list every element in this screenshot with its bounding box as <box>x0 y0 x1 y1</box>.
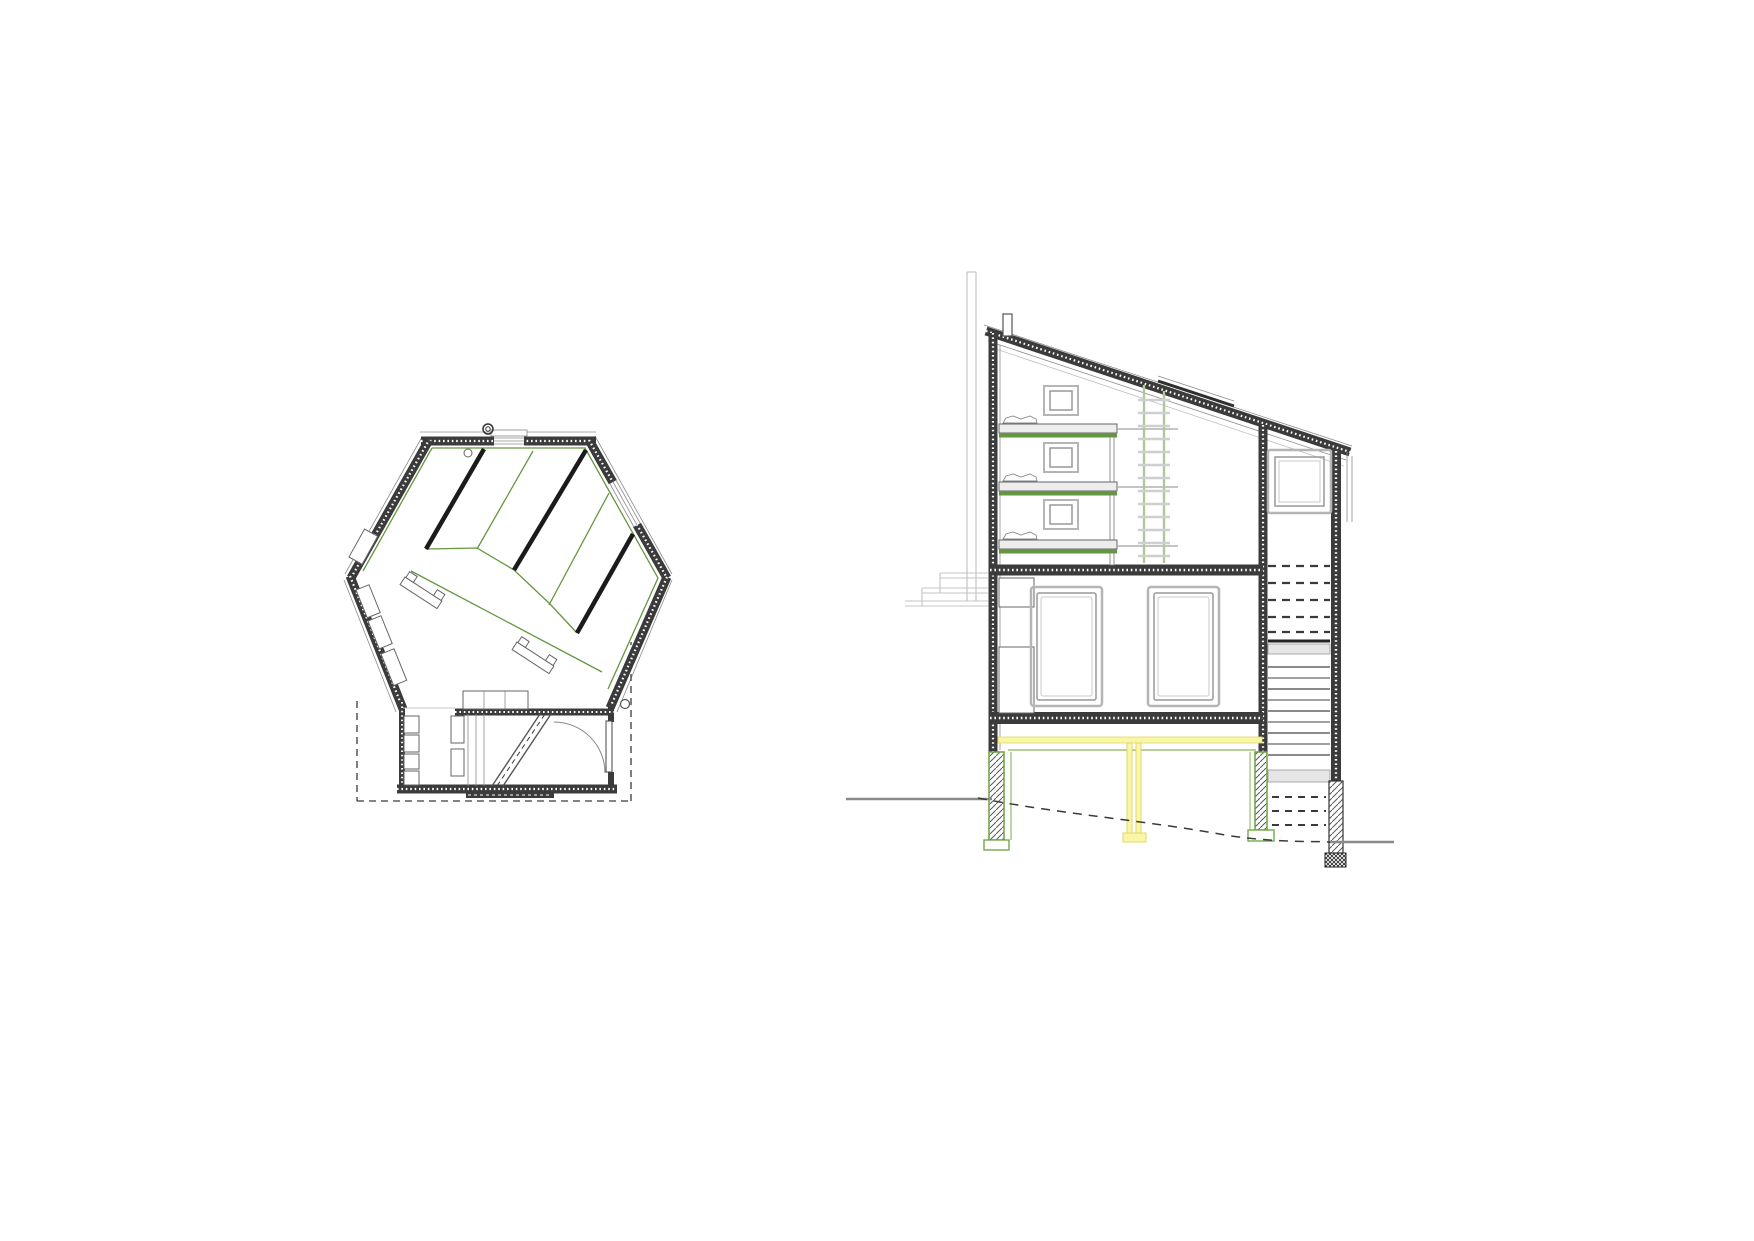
downspout <box>621 700 630 709</box>
blanket <box>1003 416 1037 423</box>
section-mid-floor <box>999 578 1219 713</box>
insulation-band <box>998 737 1262 743</box>
plan-vestibule <box>403 691 612 798</box>
section-ground <box>846 798 1394 842</box>
plan-benches <box>400 571 558 673</box>
ground-profile-dashed <box>978 798 1330 842</box>
bunk-platform <box>999 532 1117 565</box>
loft-window <box>1044 443 1078 472</box>
vestibule-ladder-stair <box>468 714 551 786</box>
cross-section-drawing <box>846 272 1394 867</box>
foundation-pier <box>989 752 1004 840</box>
bunk-platform <box>999 474 1117 540</box>
stair-landing <box>1268 770 1330 782</box>
section-upper-window <box>1268 450 1331 513</box>
section-ladder <box>1138 385 1170 563</box>
vestibule-bench <box>463 691 528 709</box>
section-roof <box>984 314 1352 466</box>
mid-window <box>1148 587 1219 706</box>
drawing-canvas <box>0 0 1754 1241</box>
stair-treads <box>1268 667 1330 755</box>
foundation-pier <box>1255 752 1267 830</box>
blanket <box>1003 474 1037 481</box>
entry-threshold <box>466 792 554 798</box>
loft-window <box>1044 500 1078 529</box>
plan-bed-partitions <box>426 449 633 633</box>
blanket <box>1003 532 1037 539</box>
cabinet <box>999 578 1034 607</box>
footing-block <box>1325 853 1346 867</box>
stair-landing <box>1268 644 1330 654</box>
wardrobe <box>999 647 1034 713</box>
section-foundation <box>984 737 1346 867</box>
chimney-vent <box>1003 314 1012 336</box>
mid-window <box>1031 587 1102 706</box>
plan-window-top <box>491 430 527 448</box>
pier-footing <box>984 840 1009 850</box>
section-stairwell <box>1268 566 1330 825</box>
yellow-post <box>1123 743 1146 842</box>
door-swing-arc <box>554 722 605 773</box>
loft-window <box>1044 386 1078 415</box>
section-exterior-pole <box>967 272 976 601</box>
vestibule-shelves <box>404 716 464 785</box>
architectural-sheet <box>0 0 1754 1241</box>
entry-door <box>554 721 612 773</box>
floor-plan-drawing <box>344 424 672 801</box>
